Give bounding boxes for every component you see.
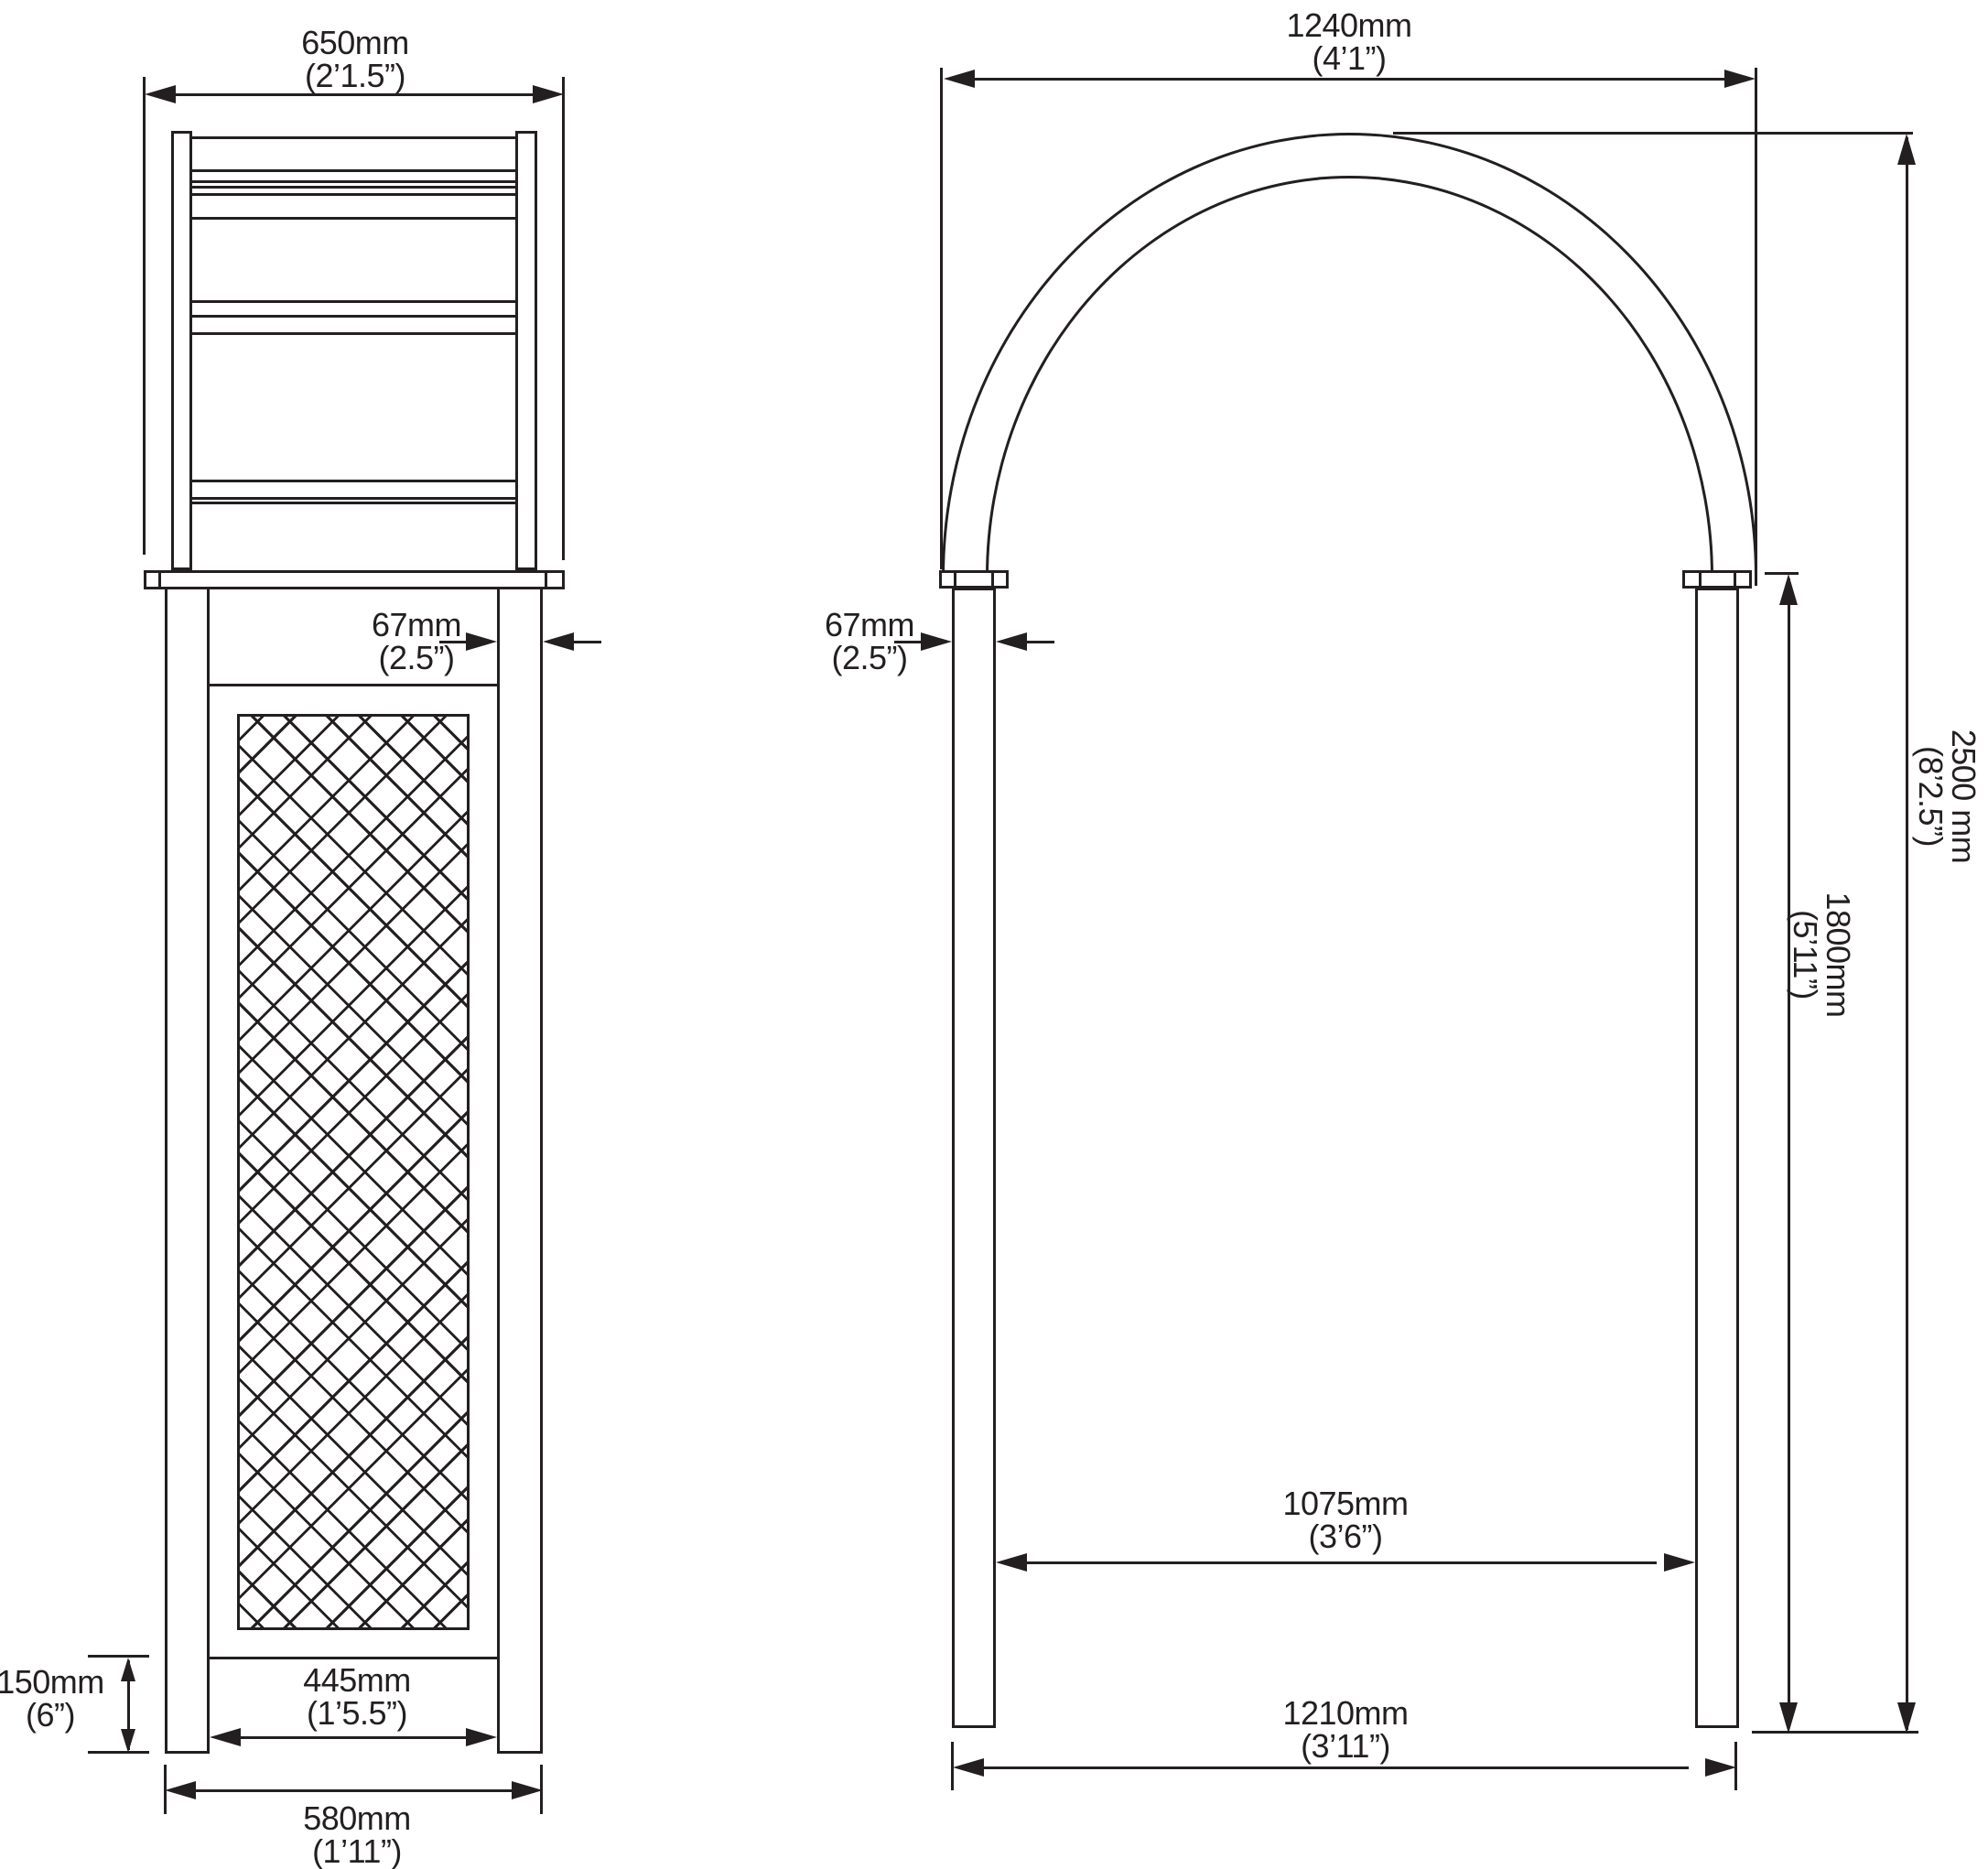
dim-1240-imperial: (4’1”) xyxy=(1212,42,1486,75)
dim-1075-imperial: (3’6”) xyxy=(1208,1520,1483,1553)
dim-1210-label: 1210mm (3’11”) xyxy=(1208,1697,1483,1763)
tick-line xyxy=(1393,132,1913,135)
dim-1800-value: 1800mm xyxy=(1821,817,1854,1092)
arrowhead-down-icon xyxy=(1897,1702,1916,1734)
front-collar-line xyxy=(954,570,956,589)
arrowhead-up-icon xyxy=(1779,574,1798,605)
arrowhead-right-icon xyxy=(1705,1758,1736,1777)
front-left-collar xyxy=(939,570,1009,589)
arrowhead-right-icon xyxy=(921,632,952,651)
dim-1210-shaft xyxy=(975,1766,1689,1769)
front-collar-line xyxy=(1699,570,1702,589)
extension-line xyxy=(1755,68,1757,586)
arrowhead-left-icon xyxy=(996,1553,1027,1572)
dim-1210-imperial: (3’11”) xyxy=(1208,1730,1483,1763)
front-view: 1240mm (4’1”) 67mm (2.5”) 2500 mm (8’2.5… xyxy=(0,0,1988,1869)
front-right-post xyxy=(1695,588,1739,1728)
dim-1240-label: 1240mm (4’1”) xyxy=(1212,9,1486,75)
arrowhead-left-icon xyxy=(944,70,975,88)
tick-line xyxy=(1752,1731,1918,1734)
technical-drawing-canvas: 650mm (2’1.5”) 67mm (2.5”) 150mm (6”) 44… xyxy=(0,0,1988,1869)
dim-1210-value: 1210mm xyxy=(1208,1697,1483,1730)
front-left-post xyxy=(952,588,996,1728)
arrowhead-down-icon xyxy=(1779,1702,1798,1734)
dim-1240-value: 1240mm xyxy=(1212,9,1486,42)
arrowhead-up-icon xyxy=(1897,134,1916,165)
dim-1800-label: 1800mm (5’11”) xyxy=(1788,817,1854,1092)
dim-1240-shaft xyxy=(961,78,1739,81)
arrowhead-right-icon xyxy=(1664,1553,1695,1572)
dim-1075-value: 1075mm xyxy=(1208,1487,1483,1520)
front-collar-line xyxy=(1734,570,1736,589)
arrowhead-left-icon xyxy=(996,632,1027,651)
dim-1800-imperial: (5’11”) xyxy=(1788,817,1821,1092)
dim-1075-shaft xyxy=(1016,1561,1657,1564)
dim-67-front-shaft xyxy=(894,641,924,643)
arrowhead-left-icon xyxy=(953,1758,984,1777)
dim-1800-shaft xyxy=(1788,578,1790,1726)
extension-line xyxy=(940,68,943,569)
front-collar-line xyxy=(991,570,994,589)
dim-2500-value: 2500 mm xyxy=(1947,659,1980,934)
dim-67-front-shaft xyxy=(1025,641,1054,643)
dim-1075-label: 1075mm (3’6”) xyxy=(1208,1487,1483,1553)
front-right-collar xyxy=(1682,570,1752,589)
dim-2500-label: 2500 mm (8’2.5”) xyxy=(1914,659,1980,934)
arrowhead-right-icon xyxy=(1724,70,1756,88)
dim-2500-imperial: (8’2.5”) xyxy=(1914,659,1947,934)
dim-2500-shaft xyxy=(1906,137,1908,1730)
